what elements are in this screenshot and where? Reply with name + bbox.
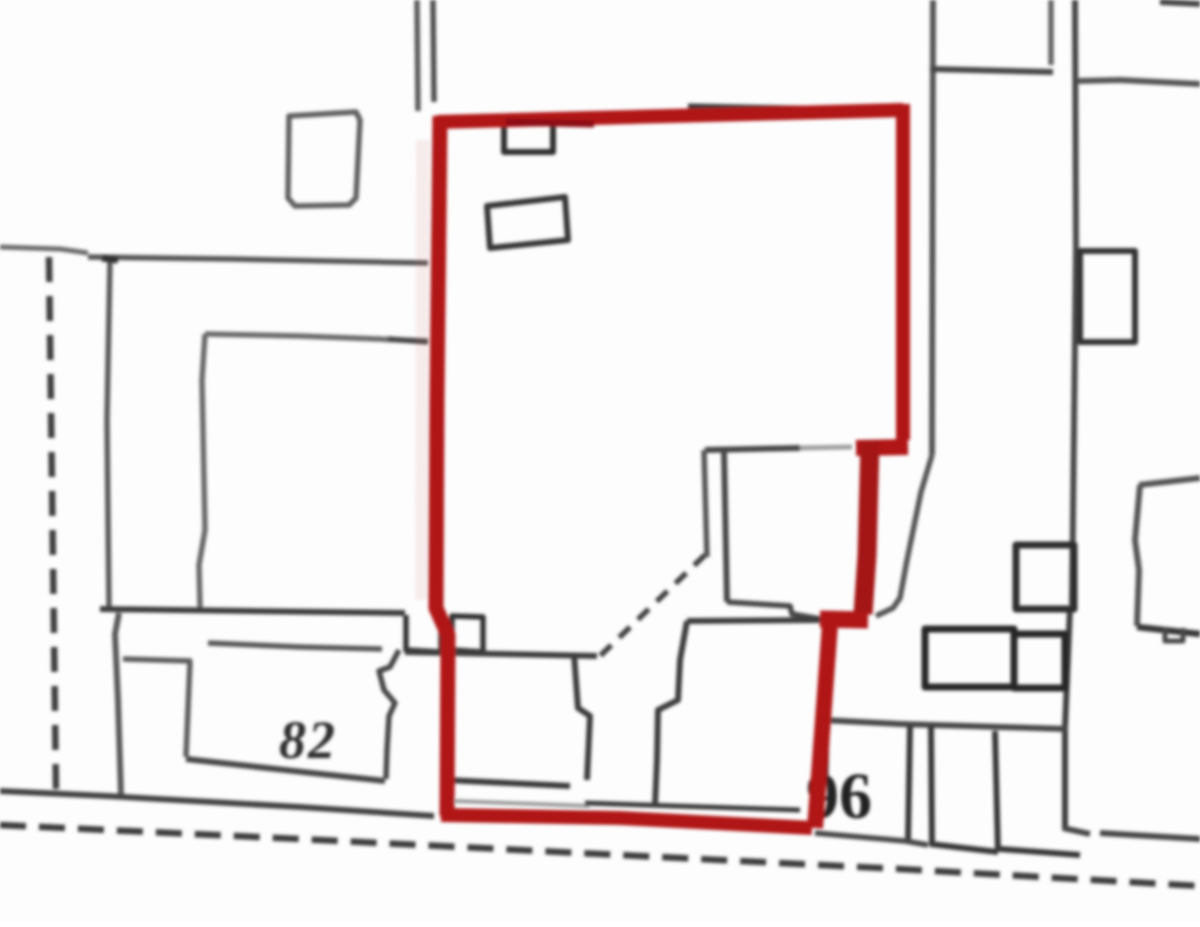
svg-text:82: 82 <box>279 710 337 770</box>
